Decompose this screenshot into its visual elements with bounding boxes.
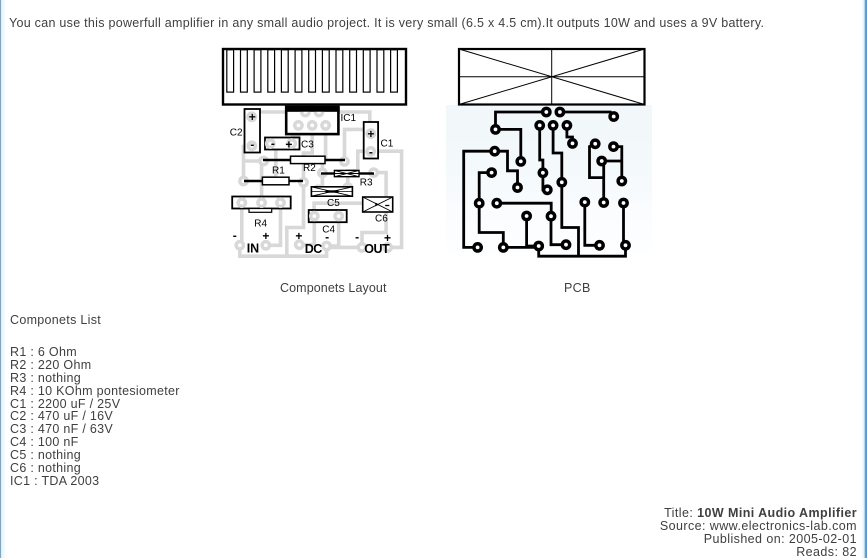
svg-text:-: -: [355, 230, 359, 244]
svg-text:+: +: [285, 138, 292, 152]
svg-text:C1: C1: [381, 139, 394, 150]
svg-text:R3: R3: [360, 178, 373, 189]
svg-text:R4: R4: [254, 219, 267, 230]
svg-text:R1: R1: [272, 166, 285, 177]
svg-text:+: +: [367, 127, 374, 141]
svg-text:IN: IN: [247, 242, 260, 256]
svg-text:-: -: [233, 228, 237, 242]
svg-text:-: -: [250, 137, 254, 151]
svg-text:C3: C3: [301, 140, 314, 151]
svg-text:+: +: [262, 229, 269, 243]
svg-text:C5: C5: [327, 198, 340, 209]
svg-text:+: +: [295, 229, 302, 243]
svg-text:C2: C2: [230, 128, 243, 139]
svg-text:+: +: [249, 110, 256, 124]
svg-text:-: -: [271, 137, 275, 151]
svg-text:DC: DC: [305, 242, 322, 256]
svg-text:R2: R2: [303, 163, 316, 174]
svg-text:C6: C6: [375, 214, 388, 225]
svg-text:OUT: OUT: [364, 242, 390, 256]
svg-text:-: -: [325, 230, 329, 244]
svg-text:-: -: [369, 145, 373, 159]
svg-text:IC1: IC1: [341, 113, 357, 124]
